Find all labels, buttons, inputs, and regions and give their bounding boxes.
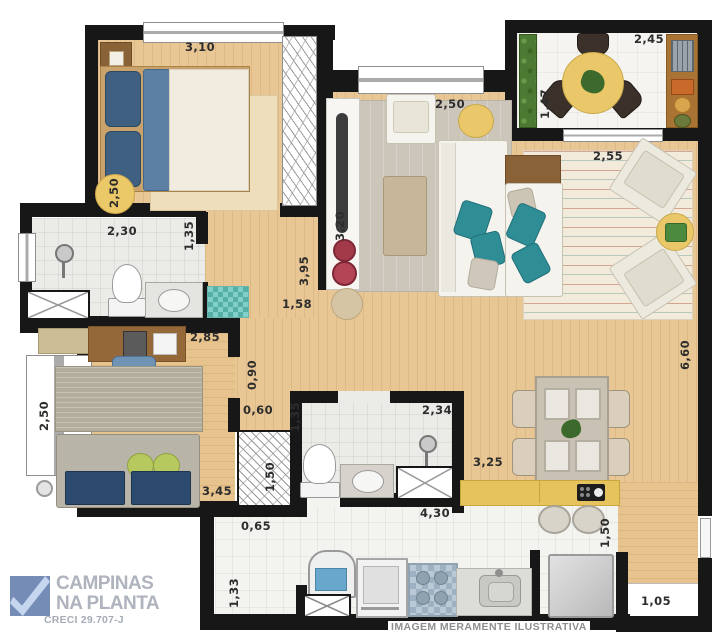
dim-nook-width: 1,58 (282, 297, 312, 311)
dim-tv-wall: 3,20 (333, 211, 347, 241)
daybed (505, 183, 563, 297)
sofa-backrest (441, 143, 456, 292)
logo-check-icon (10, 576, 50, 616)
kitchen-counter-peninsula (460, 480, 620, 506)
dim-kitchen-depth: 1,50 (598, 518, 612, 548)
dim-balcony-depth: 1,47 (538, 89, 552, 119)
dim-right-side-length: 6,60 (678, 340, 692, 370)
burner (416, 591, 430, 605)
wall-office-right-a (228, 333, 240, 357)
counter-seam (539, 481, 540, 503)
sink-basin-icon (352, 470, 384, 493)
table-lamp-icon (109, 51, 124, 66)
bedroom-wardrobe (282, 36, 317, 206)
footer-disclaimer: IMAGEM MERAMENTE ILUSTRATIVA (388, 621, 590, 633)
bathroom2-vanity (340, 464, 394, 498)
burner (434, 591, 448, 605)
shower-head-icon (55, 244, 74, 263)
wall-bath1-door-stub-a (196, 212, 208, 244)
logo-line1: CAMPINAS (56, 574, 153, 593)
entry-door-leaf (700, 518, 711, 558)
grill-icon (671, 40, 694, 72)
dim-bath1-depth: 1,35 (182, 221, 196, 251)
logo: CAMPINAS NA PLANTA CRECI 29.707-J (8, 572, 198, 636)
shower-head-icon (419, 435, 437, 453)
burner (416, 571, 430, 585)
place-mat (544, 440, 570, 472)
dim-lounge-width: 2,55 (593, 149, 623, 163)
bar-stool (538, 505, 571, 534)
bbq-counter (666, 34, 698, 128)
sink-basin-icon (158, 289, 190, 312)
wall-service-left (200, 505, 214, 628)
place-mat (544, 388, 570, 420)
bowl-icon (674, 97, 691, 113)
dim-office-depth: 2,50 (37, 401, 51, 431)
dim-balcony-width: 2,45 (634, 32, 664, 46)
wall-left-upper (85, 25, 98, 207)
logo-creci: CRECI 29.707-J (44, 615, 124, 626)
bed-pillow (105, 71, 141, 127)
coffee-table (383, 176, 427, 256)
laundry-tank (303, 594, 351, 618)
bath2-door-gap (338, 391, 390, 403)
plant-icon (578, 68, 608, 97)
wall-balcony-top (505, 20, 697, 33)
place-mat (575, 388, 601, 420)
herb-pot-icon (674, 114, 691, 128)
shower-box-2 (396, 466, 454, 500)
logo-line2: NA PLANTA (56, 594, 159, 613)
green-tray-icon (665, 223, 687, 242)
refrigerator (548, 554, 614, 618)
wall-right-lower (698, 556, 712, 630)
armchair (386, 94, 436, 144)
double-bed (100, 66, 250, 192)
kitchen-cooktop (408, 563, 458, 617)
toilet2-tank (300, 482, 340, 498)
side-table (656, 213, 694, 251)
dim-bath2-depth: 1,35 (288, 402, 302, 432)
oven-door (363, 566, 399, 604)
door-handle-icon (36, 480, 53, 497)
balcony-table (562, 52, 624, 114)
armchair-cushion (623, 149, 685, 209)
sink-basin (488, 582, 514, 602)
dining-table (535, 376, 609, 484)
burner-dot (586, 487, 590, 491)
dim-closet-width: 0,60 (243, 403, 273, 417)
washer-window (315, 568, 347, 591)
wall-balcony-right (697, 20, 712, 141)
cooktop-knob (594, 488, 603, 497)
daybed-pillow-teal (510, 241, 552, 285)
kitchen-sink (479, 575, 521, 607)
navy-cushion (65, 471, 125, 505)
dim-kitchen-width: 4,30 (420, 506, 450, 520)
decor-vase-icon (333, 239, 356, 262)
toilet-bowl (112, 264, 142, 303)
dim-closet-depth: 1,50 (263, 462, 277, 492)
wall-right (698, 140, 712, 518)
sofa (438, 140, 508, 297)
computer-icon (123, 331, 147, 359)
burner-dot (580, 493, 584, 497)
oven-handle (361, 607, 399, 610)
burner-dot (586, 493, 590, 497)
plant-icon (559, 418, 583, 441)
dim-office-width: 2,85 (190, 330, 220, 344)
dim-service-depth: 1,33 (227, 578, 241, 608)
sofa-pillow-gray (467, 257, 500, 291)
floor-plan: 3,10 2,50 2,30 1,35 2,50 2,45 1,47 2,55 … (0, 0, 720, 640)
burner (434, 571, 448, 585)
tv-panel (326, 98, 360, 290)
washing-machine (308, 550, 356, 598)
dim-service-width: 0,65 (241, 519, 271, 533)
faucet-icon (495, 569, 503, 577)
notebook-icon (153, 333, 177, 355)
place-mat (575, 440, 601, 472)
navy-cushion (131, 471, 191, 505)
dim-office-length: 3,45 (202, 484, 232, 498)
vertical-garden (519, 34, 537, 128)
beige-pouf (331, 288, 363, 320)
dim-living-width: 2,50 (435, 97, 465, 111)
living-window (358, 66, 484, 94)
dim-living-wall: 3,95 (297, 256, 311, 286)
decor-vase-icon (332, 261, 357, 286)
bathroom1-vanity (145, 282, 203, 318)
toilet2-bowl (303, 444, 336, 484)
dim-dining-width: 3,25 (473, 455, 503, 469)
bed-duvet (169, 69, 249, 191)
sink-counter (456, 568, 532, 616)
sofa-bed (56, 434, 200, 508)
office-rug (55, 366, 203, 432)
dim-bath1-width: 2,30 (107, 224, 137, 238)
cooktop-icon (577, 484, 605, 501)
dim-bedroom-width: 3,10 (185, 40, 215, 54)
teal-mat (207, 286, 249, 318)
bbq-tray-icon (671, 79, 694, 95)
shower-box (26, 290, 90, 320)
dim-bedroom-depth: 2,50 (107, 178, 121, 208)
wall-office-right-b (228, 398, 240, 432)
burner-dot (580, 487, 584, 491)
dim-entry-nook-width: 1,05 (641, 594, 671, 608)
dim-hall-width: 0,90 (245, 360, 259, 390)
armchair-cushion (393, 101, 429, 133)
entry-floor (618, 482, 698, 585)
dim-bath2-width: 2,34 (422, 403, 452, 417)
oven (356, 558, 408, 618)
logo-check-mark (10, 576, 50, 616)
bed-runner (143, 69, 171, 191)
bathroom1-window (18, 233, 36, 282)
